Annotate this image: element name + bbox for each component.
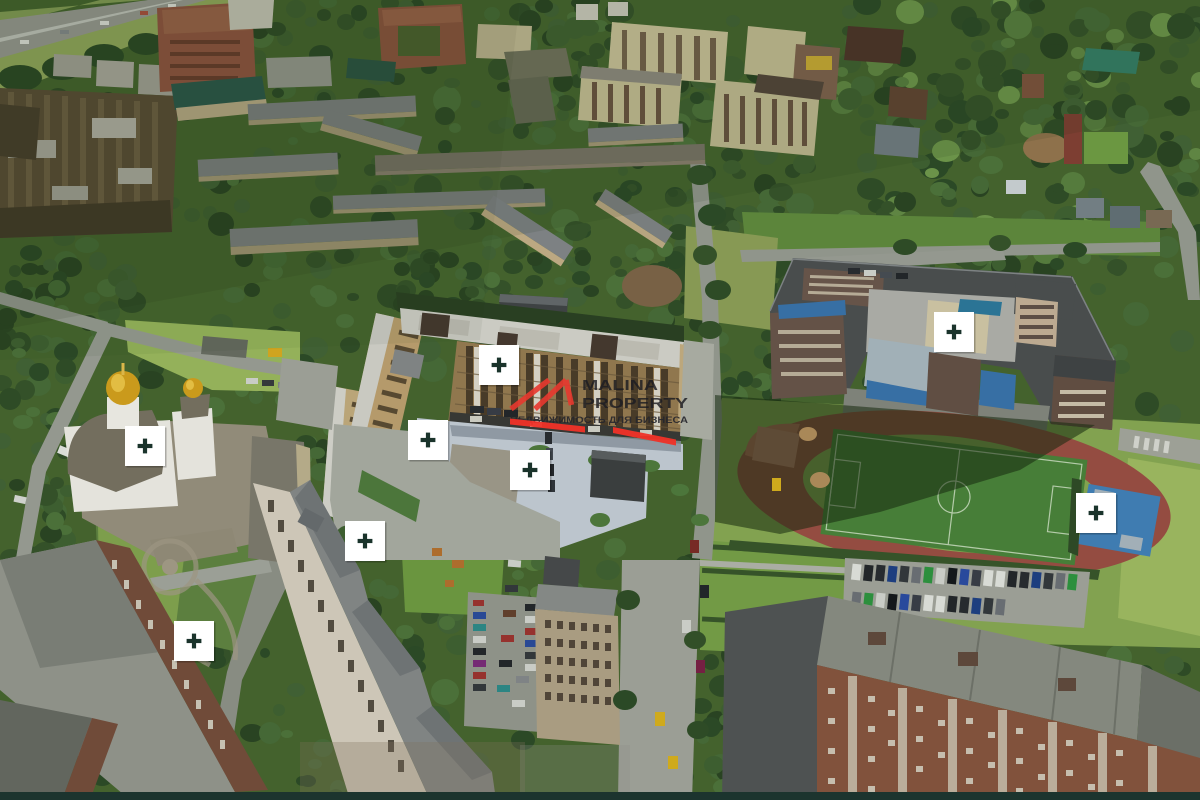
svg-text:PROPERTY: PROPERTY [582,395,688,412]
svg-text:MALINA: MALINA [582,377,658,394]
